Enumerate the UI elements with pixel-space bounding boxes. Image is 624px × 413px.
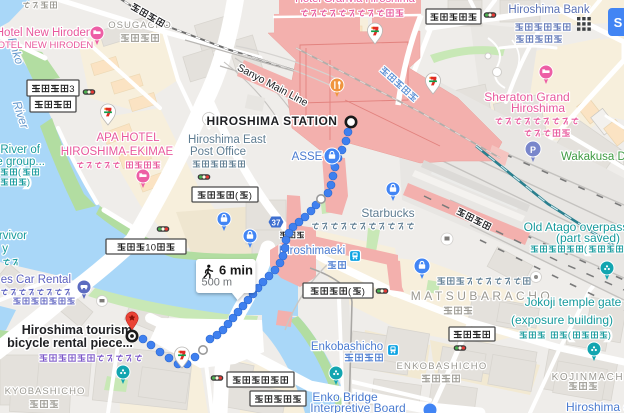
svg-text:(: ( [568, 330, 571, 340]
svg-text:KOJINMACHI: KOJINMACHI [552, 372, 624, 383]
svg-text:es Car Rental: es Car Rental [1, 274, 71, 286]
svg-text:P: P [530, 145, 536, 155]
svg-text:37: 37 [272, 219, 281, 228]
svg-text:500 m: 500 m [202, 277, 233, 289]
svg-text:Jokoji temple gate: Jokoji temple gate [525, 295, 622, 309]
svg-text:1: 1 [145, 242, 150, 253]
svg-text:y: y [2, 243, 8, 255]
svg-text:ASSE: ASSE [292, 151, 323, 163]
svg-text:S: S [614, 15, 623, 30]
svg-text:KYOBASHICHO: KYOBASHICHO [5, 386, 86, 397]
svg-text:APA HOTEL: APA HOTEL [96, 132, 160, 144]
svg-text:Starbucks: Starbucks [361, 206, 414, 220]
svg-text:Hiroshima c: Hiroshima c [566, 400, 624, 413]
svg-text:Hiroshima: Hiroshima [511, 101, 565, 115]
svg-text:(part saved): (part saved) [556, 231, 620, 245]
svg-text:rvivor: rvivor [0, 230, 27, 242]
svg-text:Hotel New Hiroden: Hotel New Hiroden [0, 27, 92, 39]
svg-text:(exposure building): (exposure building) [511, 313, 613, 327]
svg-text:Hiroshima tourism: Hiroshima tourism [22, 323, 132, 337]
svg-text:River of: River of [0, 144, 40, 156]
svg-text:Hiroshima Bank: Hiroshima Bank [508, 4, 589, 16]
svg-text:(: ( [18, 167, 21, 177]
svg-text:3: 3 [69, 84, 74, 95]
svg-text:HIROSHIMA-EKIMAE: HIROSHIMA-EKIMAE [61, 146, 174, 158]
svg-text:): ) [608, 330, 611, 340]
svg-text:): ) [362, 286, 365, 297]
svg-text:HIROSHIMA STATION: HIROSHIMA STATION [207, 114, 338, 128]
svg-text:Interpretive Board: Interpretive Board [310, 401, 405, 413]
svg-text:bicycle rental piece...: bicycle rental piece... [7, 336, 133, 350]
svg-text:HOTEL NEW HIRODEN: HOTEL NEW HIRODEN [0, 40, 93, 51]
svg-text:(: ( [584, 244, 587, 254]
svg-text:e group...: e group... [0, 156, 45, 168]
svg-text:Enkobashicho: Enkobashicho [311, 341, 383, 353]
svg-text:Hotel Granvia Hiroshima: Hotel Granvia Hiroshima [295, 0, 416, 5]
svg-text:Hiroshima East: Hiroshima East [188, 134, 267, 146]
svg-text:): ) [249, 190, 252, 201]
svg-text:Post Office: Post Office [190, 146, 246, 158]
svg-text:6 min: 6 min [219, 263, 253, 278]
svg-text:Wakakusa Do: Wakakusa Do [561, 151, 624, 163]
svg-text:0: 0 [151, 242, 156, 253]
svg-text:): ) [27, 177, 30, 187]
svg-text:ENKOBASHICHO: ENKOBASHICHO [397, 361, 488, 372]
